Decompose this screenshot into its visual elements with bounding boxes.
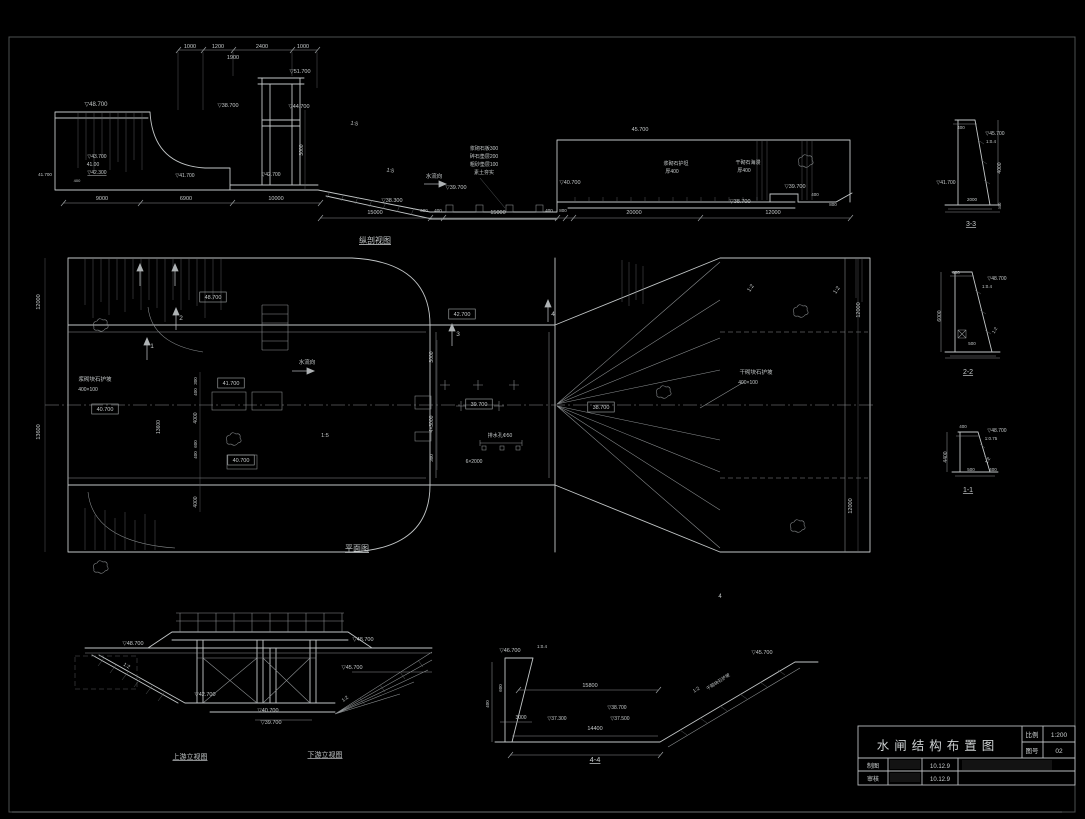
dim-label: 2000 [967,197,978,202]
dim-label: 15800 [582,683,597,689]
dim-label: 15000 [490,210,505,216]
redacted-cell [890,773,920,782]
dim-label: 400×100 [78,387,98,393]
dim-label: 14400 [587,726,602,732]
elevation-label: ▽45.700 [751,650,772,656]
dim-label: 12000 [36,294,42,309]
elevation-label: ▽48.700 [352,637,373,643]
dim-label: 12000 [765,210,780,216]
checker-date: 10.12.9 [930,777,951,783]
elevation-label: 41.700 [223,381,240,387]
elevation-label: ▽39.700 [260,720,281,726]
elevation-label: 39.700 [471,402,488,408]
elevation-label: ▽42.700 [194,692,215,698]
dim-label: 400 [957,125,965,130]
view-title: 下游立视图 [308,750,343,759]
elevation-label: ▽48.700 [987,428,1006,434]
elevation-label: ▽37.500 [610,716,629,722]
dim-label: 1:5 [321,433,329,439]
dim-label: 300 [429,454,434,462]
elevation-label: ▽39.700 [784,184,805,190]
elevation-label: ▽48.700 [122,641,143,647]
sheet-background [0,0,1085,819]
elevation-label: ▽42.300 [87,170,106,176]
dim-label: 6900 [180,196,192,202]
dim-label: 4400 [943,451,949,462]
dim-label: 13600 [36,424,42,439]
dim-label: 400 [952,270,960,275]
dim-label: 浆砌石护坦 [663,160,688,167]
dim-label: 6000 [937,310,943,321]
checker-label: 审核 [867,775,879,783]
dim-label: 1200 [212,44,224,50]
dim-label: 400 [485,700,490,708]
dim-label: 600 [498,684,503,692]
elevation-label: ▽41.700 [175,173,194,179]
dim-label: 水流向 [426,172,443,180]
dim-label: 2400 [256,44,268,50]
dim-label: 45.700 [632,127,649,133]
elevation-label: 38.700 [593,405,610,411]
redacted-cell [962,760,1052,770]
redacted-cell [890,760,920,769]
dim-label: 厚400 [665,169,679,175]
elevation-label: ▽48.700 [987,276,1006,282]
view-title: 上游立视图 [173,752,208,761]
dim-label: 3000 [299,144,305,155]
dim-label: 800 [559,208,567,213]
view-title: 4-4 [590,755,601,764]
drawing-number-label: 图号 [1026,747,1040,755]
elevation-label: ▽38.300 [381,198,402,204]
elevation-label: ▽43.700 [87,154,106,160]
dim-label: 1000 [184,44,196,50]
dim-label: 400 [74,178,81,183]
elevation-label: ▽37.300 [547,716,566,722]
dim-label: 1:0.4 [982,284,993,289]
dim-label: 排水孔Φ50 [488,432,513,439]
dim-label: 干砌块石护坡 [739,368,773,376]
dim-label: 素土夯实 [474,169,494,176]
elevation-label: ▽38.700 [729,199,750,205]
dim-label: 3 [456,331,460,338]
dim-label: 3000 [429,351,435,362]
dim-label: 300 [997,202,1002,209]
elevation-label: ▽45.700 [341,665,362,671]
dim-label: 1:0.4 [537,644,548,649]
elevation-label: 40.700 [97,407,114,413]
dim-label: 12000 [848,498,854,513]
dim-label: 400 [989,467,997,472]
dim-label: 400×100 [738,380,758,386]
elevation-label: 42.700 [454,312,471,318]
dim-label: 6×2000 [466,459,483,465]
dim-label: 4000 [997,162,1003,173]
elevation-label: ▽39.700 [445,185,466,191]
dim-label: 400 [959,424,967,429]
elevation-label: ▽41.700 [936,180,955,186]
dim-label: 粗砂垫层100 [470,161,499,168]
elevation-label: 48.700 [205,295,222,301]
dim-label: 400 [193,388,198,396]
dim-label: 浆砌石板300 [470,145,499,152]
view-title: 2-2 [963,369,973,376]
dim-label: 400 [193,451,198,459]
scale-label: 比例 [1026,730,1039,739]
dim-label: 干砌石海漫 [735,159,760,166]
dim-label: 500 [968,341,976,346]
elevation-label: ▽44.700 [288,104,309,110]
dim-label: 1:0.75 [985,436,998,441]
dim-label: 41.700 [38,172,52,177]
dim-label: 12000 [856,302,862,317]
view-title: 纵剖视图 [359,235,391,245]
elevation-label: ▽38.700 [217,103,238,109]
elevation-label: 40.700 [233,458,250,464]
dim-label: 600 [420,208,428,213]
drafter-label: 制图 [867,762,879,770]
dim-label: 4 [551,311,555,318]
dim-label: 13600 [156,420,162,434]
dim-label: 1000 [297,44,309,50]
dim-label: 1900 [227,55,239,61]
dim-label: 1 [150,343,154,350]
dim-label: 500 [967,467,975,472]
elevation-label: ▽48.700 [85,102,109,108]
scale-value: 1:200 [1051,732,1068,739]
dim-label: 1:0.4 [986,139,997,144]
dim-label: 600 [193,440,198,448]
drawing-title: 水闸结构布置图 [877,738,1000,753]
elevation-label: ▽40.700 [559,180,580,186]
dim-label: 10000 [268,196,283,202]
dim-label: 400 [434,208,442,213]
drawing-sheet: 10001200240010001900▽51.700▽48.700▽38.70… [0,0,1085,819]
dim-label: 浆砌块石护坡 [78,375,112,383]
elevation-label: ▽38.700 [607,705,626,711]
dim-label: 3000 [515,715,526,721]
dim-label: 水流向 [299,358,316,366]
dim-label: 400 [545,208,553,213]
dim-label: 2 [179,315,183,322]
drawing-number-value: 02 [1055,748,1063,755]
elevation-label: ▽45.700 [985,131,1004,137]
dim-label: 4000 [193,496,199,507]
dim-label: 碎石垫层200 [470,153,499,160]
view-title: 1-1 [963,487,973,494]
dim-label: 20000 [626,210,641,216]
dim-label: 41.00 [87,162,100,168]
elevation-label: ▽40.700 [257,708,278,714]
elevation-label: ▽42.700 [261,172,280,178]
dim-label: 4000 [193,412,199,423]
elevation-label: ▽46.700 [499,648,520,654]
dim-label: 400 [811,192,819,197]
dim-label: 15000 [367,210,382,216]
elevation-label: ▽51.700 [289,69,310,75]
dim-label: 9000 [96,196,108,202]
view-title: 3-3 [966,221,976,228]
dim-label: 800 [829,202,837,207]
dim-label: 厚400 [737,168,751,174]
drafter-date: 10.12.9 [930,764,951,770]
view-title: 平面图 [345,544,369,553]
dim-label: 4×3000 [429,415,435,432]
dim-label: 300 [193,377,198,385]
